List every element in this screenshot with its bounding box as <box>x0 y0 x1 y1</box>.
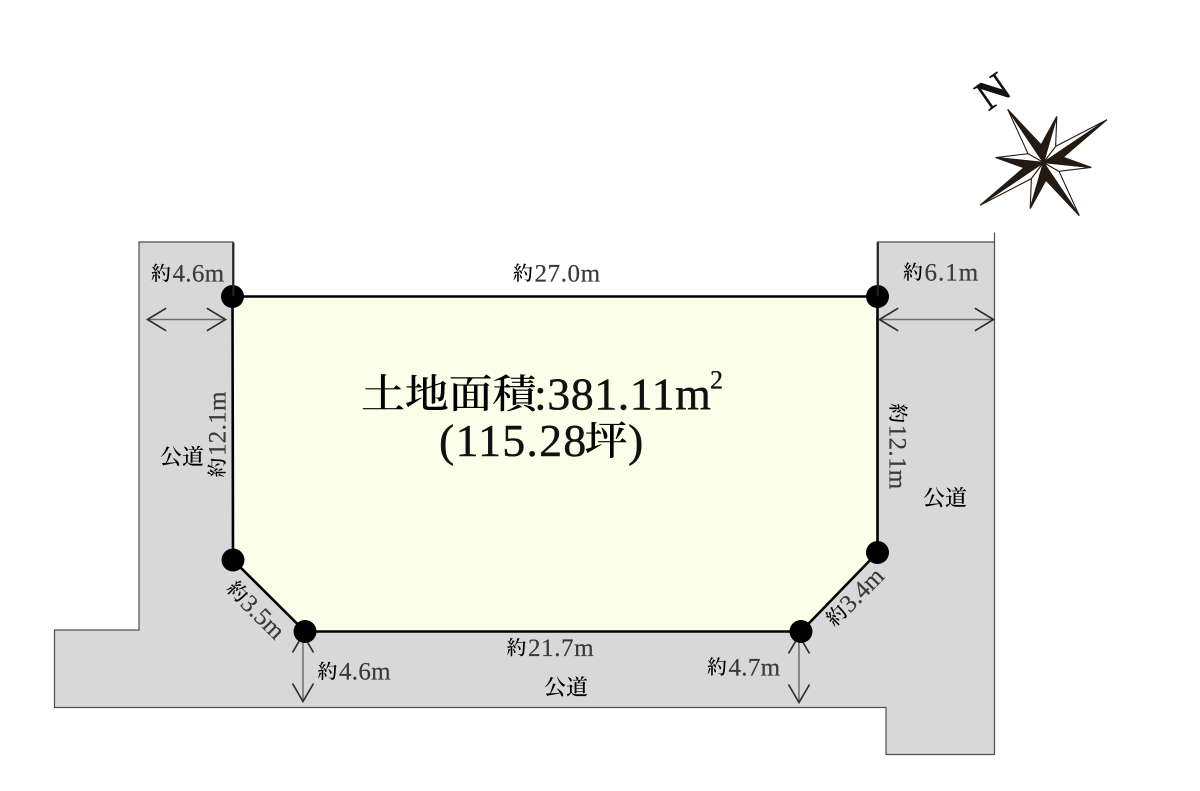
svg-text:4.6m: 4.6m <box>339 659 391 686</box>
svg-text:4.7m: 4.7m <box>729 654 781 681</box>
svg-text:): ) <box>628 415 643 466</box>
svg-text:12.1m: 12.1m <box>884 425 911 490</box>
svg-text:(115.28: (115.28 <box>439 415 588 466</box>
svg-text:27.0m: 27.0m <box>535 261 601 288</box>
svg-text:2: 2 <box>710 366 723 395</box>
svg-text::381.11m: :381.11m <box>534 369 711 420</box>
svg-text:6.1m: 6.1m <box>925 260 980 287</box>
svg-text:4.6m: 4.6m <box>173 261 225 288</box>
svg-text:21.7m: 21.7m <box>528 635 594 662</box>
svg-text:12.1m: 12.1m <box>205 391 232 456</box>
